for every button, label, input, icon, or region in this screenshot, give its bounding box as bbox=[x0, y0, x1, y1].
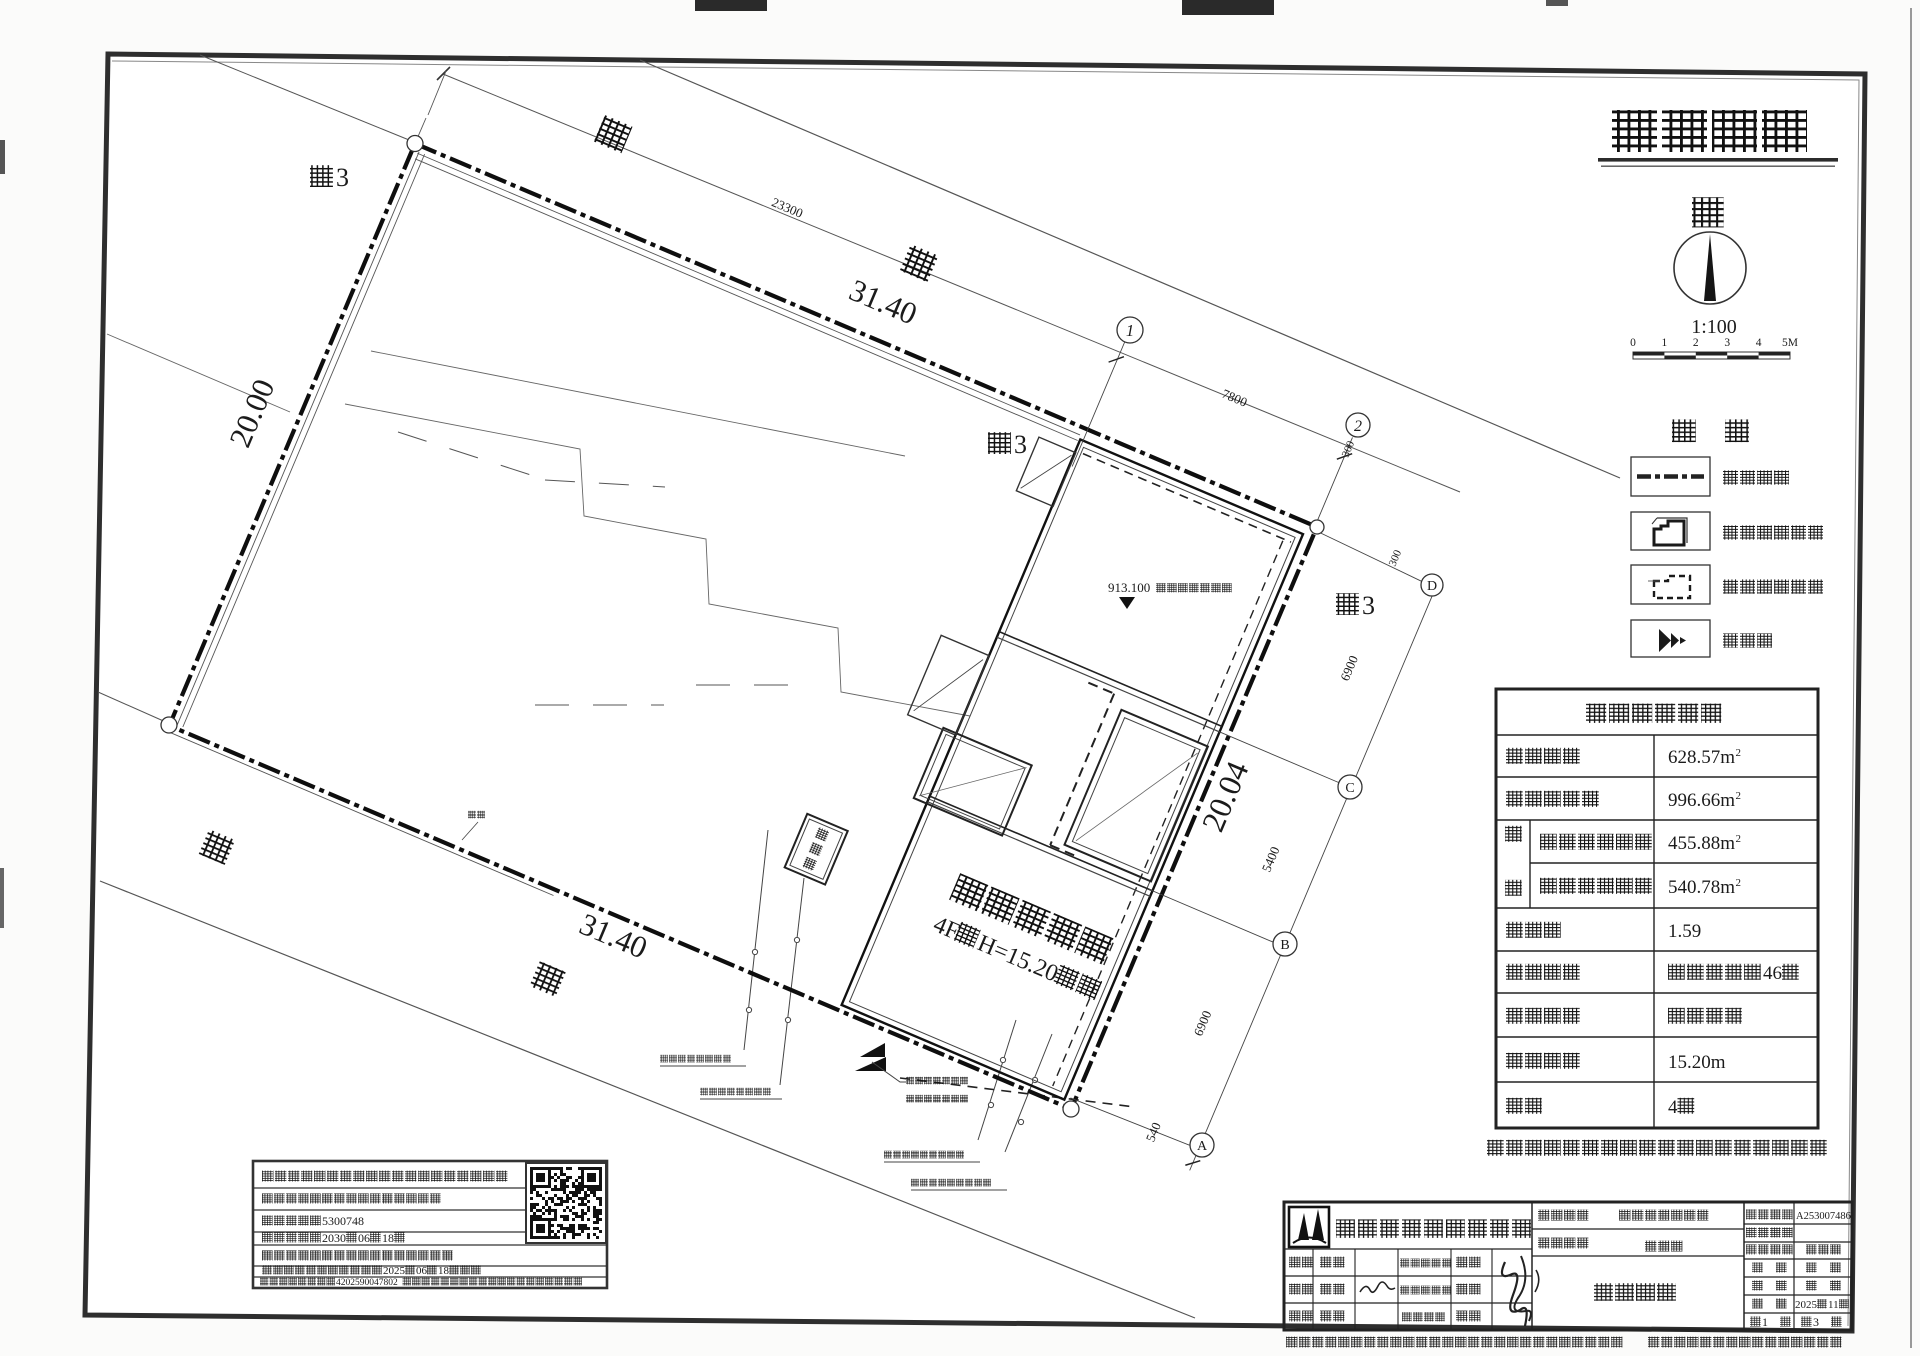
svg-text:C: C bbox=[1345, 781, 1354, 796]
svg-text:D: D bbox=[1427, 579, 1437, 594]
svg-text:1: 1 bbox=[1662, 337, 1668, 349]
svg-text:1: 1 bbox=[1762, 1315, 1768, 1329]
svg-text:A: A bbox=[1197, 1139, 1208, 1154]
svg-text:4202590047802: 4202590047802 bbox=[336, 1278, 398, 1288]
svg-text:3: 3 bbox=[1014, 430, 1027, 459]
svg-text:996.66m: 996.66m bbox=[1668, 790, 1735, 811]
svg-text:2: 2 bbox=[1736, 790, 1742, 802]
svg-text:2: 2 bbox=[1354, 418, 1362, 435]
svg-text:06: 06 bbox=[358, 1231, 370, 1245]
svg-text:3: 3 bbox=[336, 163, 349, 192]
svg-text:2030: 2030 bbox=[322, 1231, 346, 1245]
svg-text:2025: 2025 bbox=[1795, 1299, 1818, 1311]
svg-text:455.88m: 455.88m bbox=[1668, 833, 1735, 854]
svg-text:540.78m: 540.78m bbox=[1668, 877, 1735, 898]
svg-text:3: 3 bbox=[1724, 337, 1730, 349]
svg-text:1.59: 1.59 bbox=[1668, 921, 1701, 942]
svg-text:4: 4 bbox=[1668, 1097, 1678, 1118]
svg-text:5M: 5M bbox=[1782, 337, 1798, 349]
svg-text:3: 3 bbox=[1813, 1315, 1819, 1329]
svg-text:4: 4 bbox=[1756, 337, 1762, 349]
svg-text:B: B bbox=[1280, 938, 1289, 953]
svg-text:18: 18 bbox=[382, 1231, 394, 1245]
svg-text:5300748: 5300748 bbox=[322, 1214, 364, 1228]
svg-text:2: 2 bbox=[1736, 747, 1742, 759]
svg-text:3: 3 bbox=[1362, 591, 1375, 620]
svg-text:46: 46 bbox=[1763, 963, 1782, 984]
svg-text:2: 2 bbox=[1736, 877, 1742, 889]
svg-text:06: 06 bbox=[416, 1265, 428, 1277]
svg-text:913.100: 913.100 bbox=[1108, 580, 1150, 595]
svg-text:18: 18 bbox=[438, 1265, 450, 1277]
svg-text:A253007486: A253007486 bbox=[1796, 1211, 1851, 1222]
svg-text:2: 2 bbox=[1693, 337, 1699, 349]
svg-text:1: 1 bbox=[1126, 321, 1135, 340]
svg-text:2025: 2025 bbox=[383, 1265, 406, 1277]
svg-text:15.20m: 15.20m bbox=[1668, 1052, 1726, 1073]
svg-text:2: 2 bbox=[1736, 833, 1742, 845]
svg-text:11: 11 bbox=[1828, 1299, 1839, 1311]
svg-text:0: 0 bbox=[1630, 337, 1636, 349]
svg-text:1:100: 1:100 bbox=[1691, 316, 1737, 338]
svg-text:628.57m: 628.57m bbox=[1668, 747, 1735, 768]
